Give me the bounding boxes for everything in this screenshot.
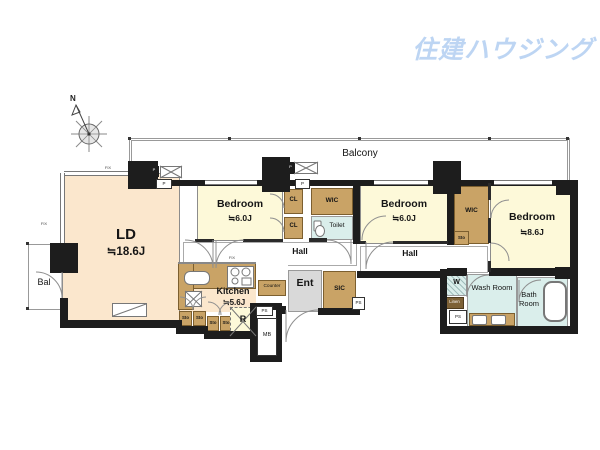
balcony-railing-right (567, 139, 570, 183)
wall (360, 241, 366, 244)
stove (227, 266, 254, 288)
wic-west-label: WIC (311, 197, 353, 205)
kitchen-sink (184, 271, 210, 285)
wall (488, 261, 491, 272)
bedroom-west-size: ≒6.0J (197, 213, 283, 223)
railing-post (228, 137, 231, 140)
compass-icon: N (70, 94, 107, 152)
pipe-label: P (156, 181, 172, 186)
bedroom-east-size: ≒8.6J (490, 227, 574, 237)
fix-window-label: FIX (34, 222, 54, 227)
side-balcony-label: Bal (30, 277, 58, 288)
wash-room-label: Wash Room (467, 283, 517, 292)
wall (195, 239, 214, 242)
hall-west-label: Hall (270, 246, 330, 256)
refrigerator-label: R (230, 314, 256, 325)
railing-post (566, 137, 569, 140)
dishwasher-space (185, 291, 202, 307)
wall (309, 238, 327, 242)
sto-label: Sto (454, 235, 469, 240)
floor-plan: 住建ハウジング Balcony Bal (0, 0, 600, 450)
wall (440, 326, 578, 334)
linen-label: Linen (445, 299, 464, 304)
wall (489, 268, 574, 276)
railing-post (26, 242, 29, 245)
bedroom-center-name: Bedroom (360, 198, 448, 211)
wall (393, 241, 448, 244)
balcony-railing-top (130, 138, 570, 141)
cl2-label: CL (284, 223, 303, 230)
balcony-label: Balcony (330, 148, 390, 160)
wall (204, 331, 256, 339)
window (60, 173, 65, 243)
railing-post (128, 137, 131, 140)
ld-name: LD (76, 226, 176, 244)
ps-label: PS (449, 314, 467, 319)
bedroom-center-size: ≒6.0J (360, 213, 448, 223)
wall (178, 262, 256, 264)
hall-east-label: Hall (380, 248, 440, 258)
cl1-label: CL (284, 197, 303, 204)
ps-label: PS (256, 308, 273, 313)
vent-box (294, 162, 318, 174)
wall (60, 320, 182, 328)
sto-label: Sto (207, 320, 219, 325)
sto-label: Sto (179, 315, 192, 320)
pipe-label: P (295, 181, 310, 186)
wall (243, 239, 283, 242)
wall (447, 268, 467, 276)
sic-label: SIC (323, 285, 356, 293)
entrance-label: Ent (288, 277, 322, 290)
wall (357, 271, 443, 278)
ld-size: ≒18.6J (76, 246, 176, 260)
wall (353, 184, 360, 244)
toilet-label: Toilet (322, 222, 352, 230)
fix-window-label: FIX (222, 256, 242, 261)
railing-post (488, 137, 491, 140)
railing-post (26, 307, 29, 310)
window (494, 180, 552, 185)
wall (447, 183, 454, 245)
ld-counter (112, 303, 147, 317)
bedroom-east-name: Bedroom (490, 211, 574, 224)
wic-east-label: WIC (454, 207, 489, 215)
ps-label: PS (352, 300, 365, 305)
bath-room-label: Bath Room (514, 290, 544, 308)
kitchen-size: ≒5.6J (206, 298, 262, 308)
pipe-label: P (286, 165, 295, 170)
counter-label: Counter (258, 284, 286, 290)
pipe-label: P (149, 168, 159, 173)
wall (570, 186, 578, 328)
window (374, 180, 428, 185)
bedroom-west-name: Bedroom (197, 198, 283, 211)
window (64, 171, 128, 176)
wall (60, 298, 68, 322)
compass-north-label: N (70, 94, 76, 103)
sto-label: Sto (193, 315, 206, 320)
wall (250, 356, 282, 362)
kitchen-name: Kitchen (204, 286, 262, 297)
railing-post (358, 137, 361, 140)
balcony-railing-left (129, 140, 132, 162)
meter-box-label: MB (257, 332, 277, 339)
window (205, 180, 257, 185)
bathtub (543, 281, 567, 322)
vent-box (160, 166, 182, 178)
wash-basin (491, 315, 506, 325)
wall (488, 183, 491, 200)
pillar (50, 243, 78, 273)
washer-label: W (446, 279, 467, 287)
wash-basin (472, 315, 487, 325)
fix-window-label: FIX (98, 166, 118, 171)
agency-logo: 住建ハウジング (412, 30, 594, 66)
